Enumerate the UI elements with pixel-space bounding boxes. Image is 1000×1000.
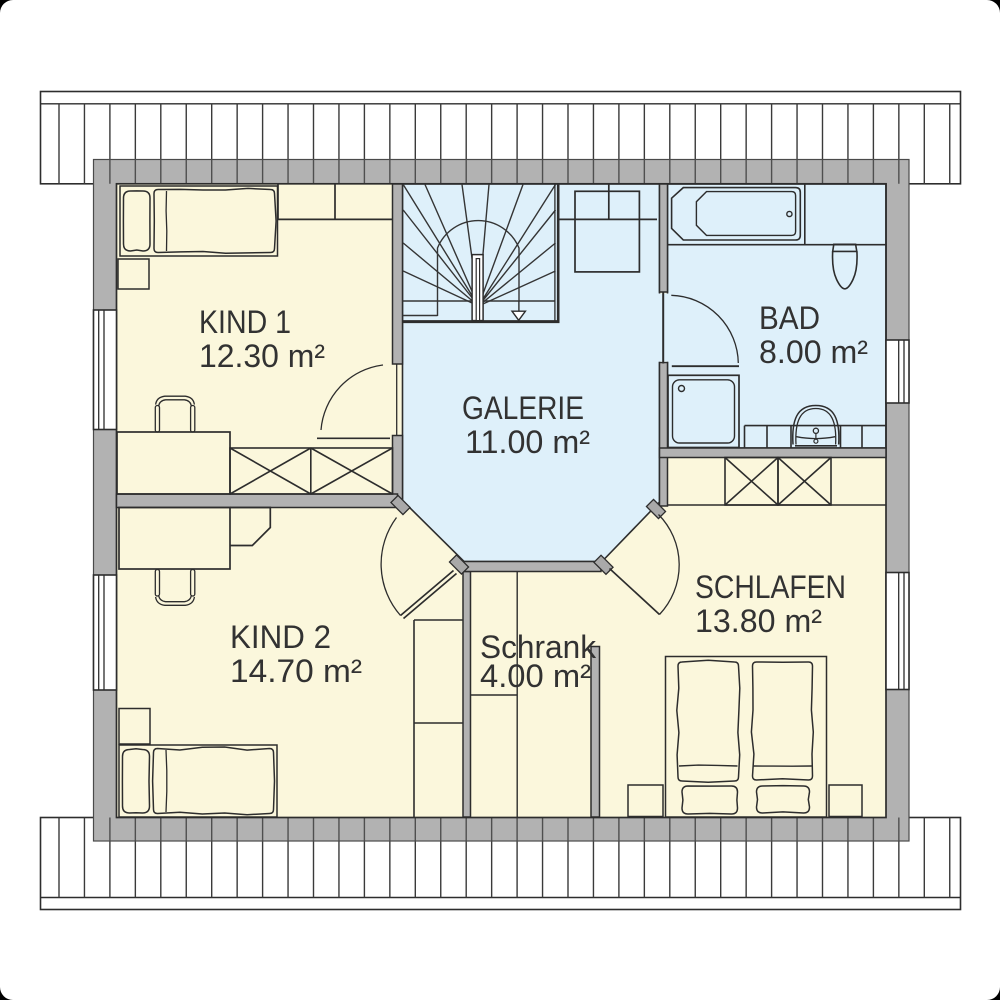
svg-text:11.00 m²: 11.00 m²	[465, 424, 590, 460]
svg-text:13.80 m²: 13.80 m²	[695, 603, 822, 639]
svg-text:GALERIE: GALERIE	[462, 390, 584, 426]
svg-text:4.00 m²: 4.00 m²	[480, 658, 591, 694]
svg-text:SCHLAFEN: SCHLAFEN	[695, 569, 846, 605]
svg-text:KIND 2: KIND 2	[230, 619, 331, 655]
svg-text:12.30 m²: 12.30 m²	[199, 338, 325, 374]
svg-text:8.00 m²: 8.00 m²	[759, 334, 868, 370]
svg-text:KIND 1: KIND 1	[199, 304, 291, 340]
svg-text:BAD: BAD	[759, 300, 820, 336]
svg-text:14.70 m²: 14.70 m²	[230, 653, 362, 689]
